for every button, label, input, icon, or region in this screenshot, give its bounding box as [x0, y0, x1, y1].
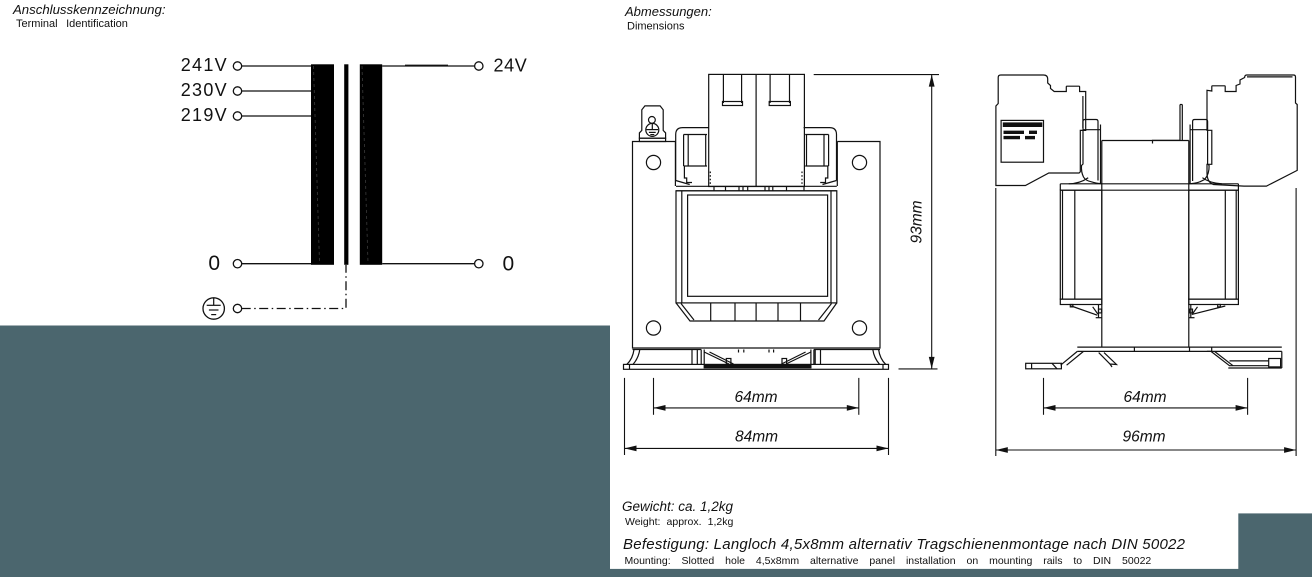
- svg-text:Terminal Identification: Terminal Identification: [16, 18, 128, 30]
- svg-text:Dimensions: Dimensions: [627, 21, 685, 33]
- svg-text:Abmessungen:: Abmessungen:: [624, 4, 712, 19]
- svg-text:24V: 24V: [494, 55, 528, 75]
- svg-text:230V: 230V: [181, 80, 228, 100]
- svg-text:Anschlusskennzeichnung:: Anschlusskennzeichnung:: [12, 2, 166, 17]
- svg-text:219V: 219V: [181, 105, 228, 125]
- svg-text:241V: 241V: [181, 55, 228, 75]
- svg-text:93mm: 93mm: [909, 200, 926, 243]
- svg-text:64mm: 64mm: [734, 389, 777, 406]
- svg-text:Weight: approx. 1,2kg: Weight: approx. 1,2kg: [625, 516, 734, 528]
- svg-text:96mm: 96mm: [1122, 429, 1165, 446]
- svg-text:84mm: 84mm: [735, 429, 778, 446]
- svg-text:0: 0: [208, 252, 220, 275]
- svg-text:64mm: 64mm: [1123, 389, 1166, 406]
- svg-text:Mounting: Slotted hole 4,5x8mm: Mounting: Slotted hole 4,5x8mm alternati…: [625, 555, 1152, 567]
- svg-text:Gewicht: ca. 1,2kg: Gewicht: ca. 1,2kg: [622, 499, 734, 514]
- svg-text:Befestigung: Langloch 4,5x8mm: Befestigung: Langloch 4,5x8mm alternativ…: [623, 536, 1186, 553]
- svg-text:0: 0: [503, 252, 515, 275]
